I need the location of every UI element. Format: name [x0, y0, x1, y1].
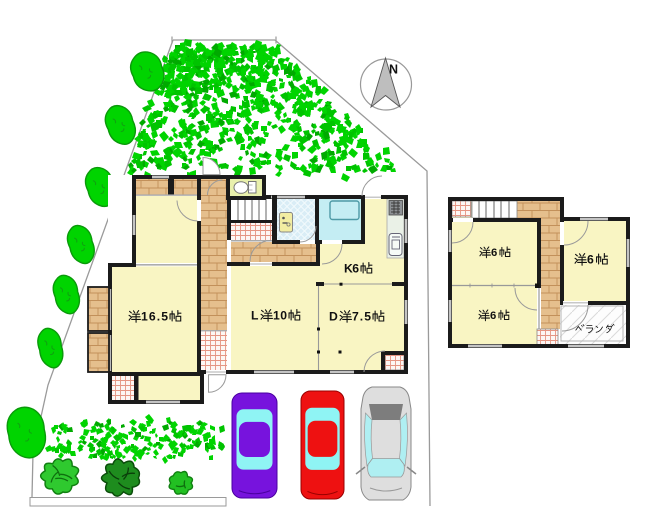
svg-text:6: 6: [587, 253, 594, 267]
svg-text:7.5: 7.5: [352, 310, 371, 324]
svg-text:K6: K6: [344, 262, 359, 276]
svg-text:6: 6: [491, 247, 497, 259]
svg-text:6: 6: [490, 310, 496, 322]
svg-text:16.5: 16.5: [141, 310, 168, 324]
svg-text:L: L: [251, 309, 259, 323]
svg-text:10: 10: [273, 309, 287, 323]
svg-text:D: D: [329, 310, 338, 324]
svg-text:N: N: [389, 63, 398, 77]
